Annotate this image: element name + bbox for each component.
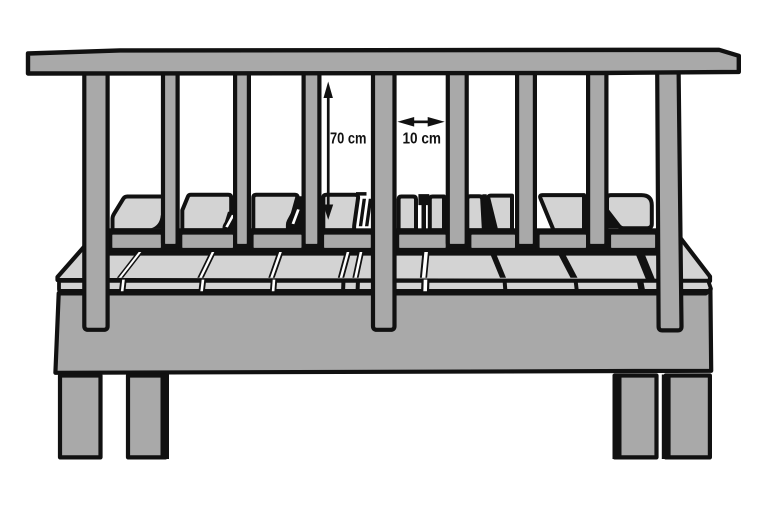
svg-text:70 cm: 70 cm [330,130,367,147]
svg-text:10 cm: 10 cm [403,130,442,147]
